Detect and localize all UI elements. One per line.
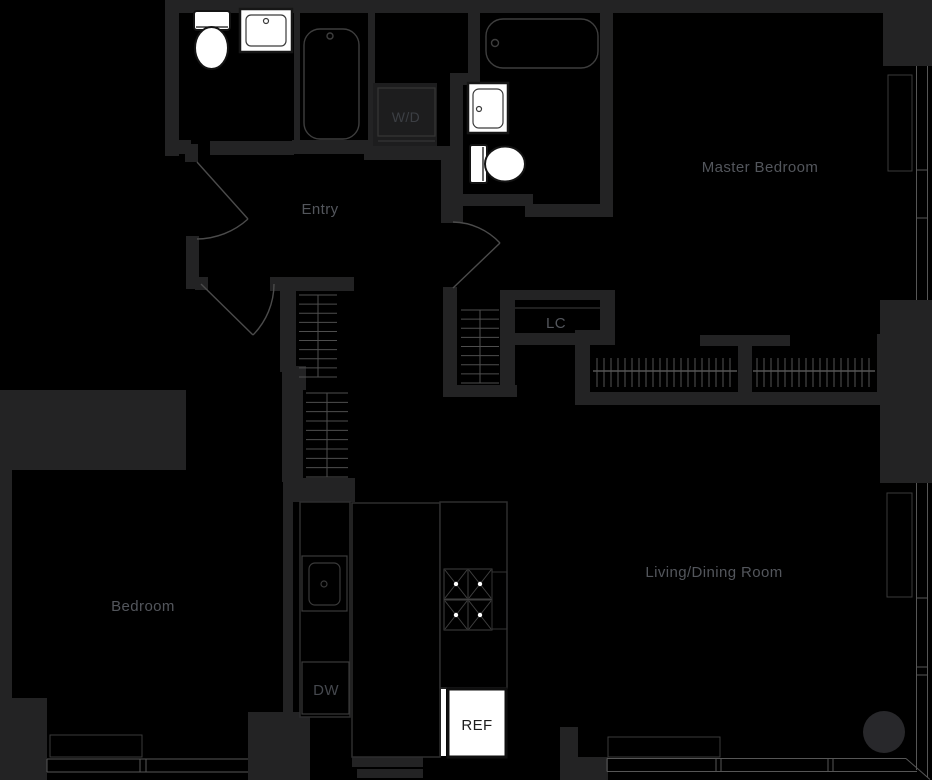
sink-faucet <box>264 19 269 24</box>
floor-plan-drawing: Entry Master Bedroom Bedroom Living/Dini… <box>0 0 932 780</box>
wall-segment <box>294 12 300 154</box>
kitchen-counter-right <box>440 502 507 688</box>
wall-segment <box>880 300 932 483</box>
wall-segment <box>525 204 613 217</box>
wall-segment <box>210 141 294 155</box>
wall-segment <box>738 341 752 393</box>
wall-segment <box>575 392 895 405</box>
burner-dot <box>478 582 482 586</box>
wall-segment <box>578 757 608 780</box>
wall-segment <box>468 12 480 75</box>
master-toilet-bowl <box>485 147 525 182</box>
appliance-label-washer-dryer: W/D <box>392 109 420 125</box>
appliance-label-refrigerator: REF <box>461 717 492 734</box>
wall-segment <box>0 390 186 470</box>
appliance-label-dishwasher: DW <box>313 682 339 699</box>
room-label-entry: Entry <box>301 201 338 218</box>
wall-segment <box>292 140 374 154</box>
master-sink <box>468 83 508 133</box>
toilet <box>194 11 230 69</box>
wall-segment <box>883 0 932 66</box>
wall-segment <box>575 330 608 345</box>
toilet-bowl <box>195 27 228 69</box>
wall-segment <box>283 488 355 502</box>
wall-segment <box>165 0 179 156</box>
master-sink-faucet <box>477 107 482 112</box>
wall-segment <box>352 757 423 767</box>
wall-segment <box>0 698 47 780</box>
wall-segment <box>443 287 457 397</box>
wall-segment <box>248 712 310 780</box>
wall-segment <box>283 480 293 714</box>
wall-segment <box>282 390 303 482</box>
wall-segment <box>502 290 602 300</box>
wall-segment <box>185 144 198 162</box>
structural-column <box>863 711 905 753</box>
kitchen-island <box>352 503 440 757</box>
floor-plan: Entry Master Bedroom Bedroom Living/Dini… <box>0 0 932 780</box>
burner-dot <box>454 613 458 617</box>
wall-segment <box>364 146 445 160</box>
burner-dot <box>478 613 482 617</box>
room-label-bedroom: Bedroom <box>111 598 175 615</box>
wall-segment <box>357 769 423 778</box>
wall-segment <box>600 12 613 208</box>
refrigerator-door <box>441 689 446 756</box>
burner-dot <box>454 582 458 586</box>
sink <box>240 9 292 52</box>
room-label-master-bedroom: Master Bedroom <box>702 159 818 176</box>
wall-segment <box>575 345 590 393</box>
room-label-living-dining: Living/Dining Room <box>645 564 782 581</box>
room-label-linen-closet: LC <box>546 315 566 332</box>
wall-segment <box>280 277 296 372</box>
wall-segment <box>441 194 533 206</box>
master-toilet <box>470 145 525 183</box>
wall-segment <box>560 727 578 780</box>
